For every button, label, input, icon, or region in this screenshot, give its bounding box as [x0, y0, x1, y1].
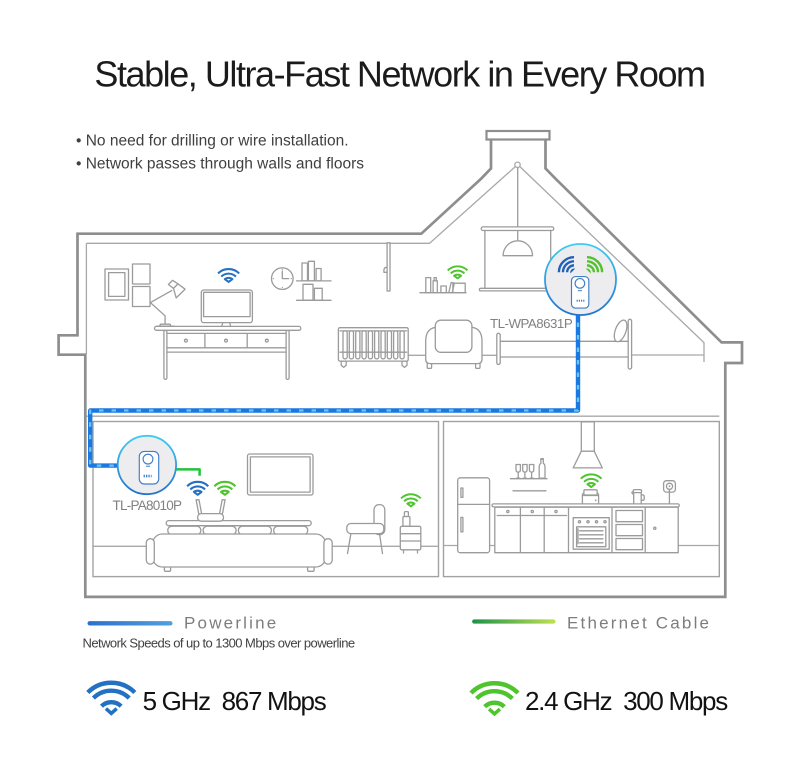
svg-text:• Network passes through walls: • Network passes through walls and floor… — [76, 156, 364, 173]
svg-text:TL-WPA8631P: TL-WPA8631P — [490, 316, 573, 331]
svg-text:TL-PA8010P: TL-PA8010P — [113, 498, 183, 513]
svg-text:Stable, Ultra-Fast Network in: Stable, Ultra-Fast Network in Every Room — [94, 53, 704, 94]
svg-text:5 GHz 867 Mbps: 5 GHz 867 Mbps — [143, 686, 327, 716]
svg-text:Ethernet Cable: Ethernet Cable — [567, 614, 711, 633]
svg-text:Network Speeds of up to 1300 M: Network Speeds of up to 1300 Mbps over p… — [83, 636, 355, 651]
svg-text:2.4 GHz 300 Mbps: 2.4 GHz 300 Mbps — [525, 686, 728, 716]
svg-text:• No need for drilling or wire: • No need for drilling or wire installat… — [76, 132, 349, 149]
svg-text:Powerline: Powerline — [184, 614, 278, 633]
